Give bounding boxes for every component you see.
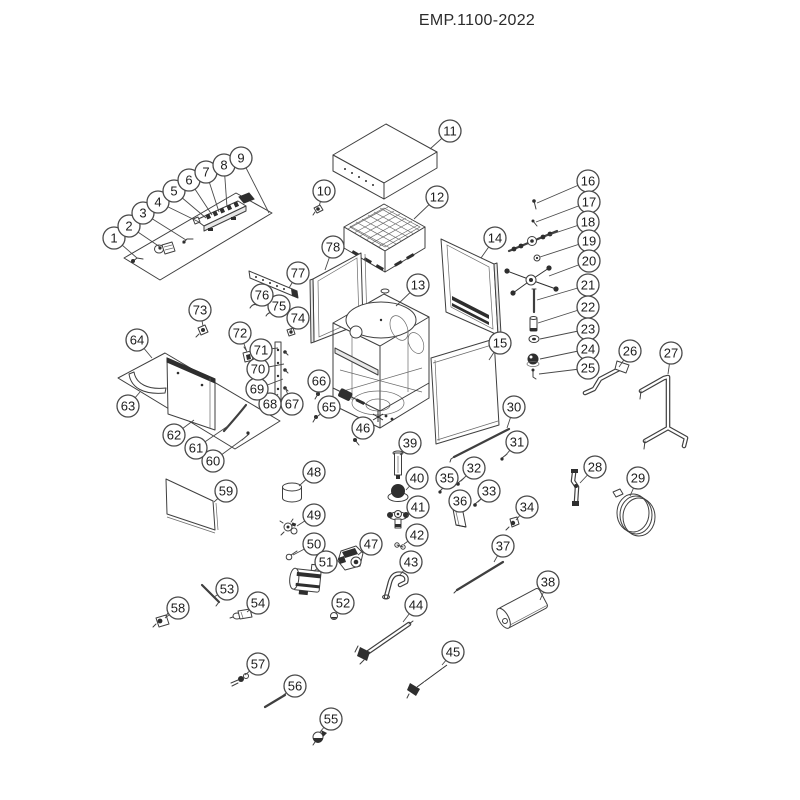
balloon-number-15: 15 bbox=[493, 336, 507, 351]
balloon-number-48: 48 bbox=[307, 465, 321, 480]
balloon-number-8: 8 bbox=[220, 158, 227, 173]
part-dome-40 bbox=[388, 484, 408, 502]
balloon-number-33: 33 bbox=[482, 484, 496, 499]
balloon-number-41: 41 bbox=[411, 500, 425, 515]
balloon-number-2: 2 bbox=[125, 219, 132, 234]
part-cup-48 bbox=[283, 483, 302, 502]
part-hose-28 bbox=[571, 469, 579, 506]
part-cylinder-38 bbox=[494, 587, 548, 630]
balloon-number-1: 1 bbox=[110, 231, 117, 246]
balloon-number-20: 20 bbox=[582, 254, 596, 269]
part-valve-41 bbox=[387, 511, 409, 529]
balloon-number-69: 69 bbox=[250, 382, 264, 397]
balloon-number-4: 4 bbox=[154, 195, 161, 210]
part-shaft-21 bbox=[532, 289, 536, 312]
exploded-diagram: 1234567891011121314151617181920212223242… bbox=[0, 0, 800, 800]
part-screw-66 bbox=[315, 392, 320, 399]
part-nut-19 bbox=[534, 255, 540, 261]
balloon-number-72: 72 bbox=[233, 326, 247, 341]
balloon-number-59: 59 bbox=[219, 484, 233, 499]
balloon-number-28: 28 bbox=[588, 460, 602, 475]
part-wash-arm-20 bbox=[504, 265, 558, 295]
balloon-number-38: 38 bbox=[541, 575, 555, 590]
part-nut-23 bbox=[529, 336, 539, 343]
balloon-number-27: 27 bbox=[664, 346, 678, 361]
balloon-number-57: 57 bbox=[251, 657, 265, 672]
balloon-number-7: 7 bbox=[202, 165, 209, 180]
part-sleeve-22 bbox=[530, 317, 537, 332]
part-screw-16 bbox=[532, 199, 536, 209]
part-rod-56 bbox=[265, 695, 285, 707]
balloon-number-23: 23 bbox=[581, 322, 595, 337]
part-heater-tube-45 bbox=[407, 665, 447, 698]
balloon-number-53: 53 bbox=[220, 582, 234, 597]
part-elbow-43 bbox=[383, 574, 407, 599]
part-screw-17 bbox=[532, 220, 538, 227]
balloon-number-44: 44 bbox=[409, 598, 423, 613]
part-screw-46 bbox=[353, 438, 359, 445]
part-top-cover bbox=[333, 124, 437, 199]
balloon-number-68: 68 bbox=[263, 397, 277, 412]
balloon-number-34: 34 bbox=[520, 500, 534, 515]
balloon-number-56: 56 bbox=[288, 679, 302, 694]
balloon-number-14: 14 bbox=[488, 231, 502, 246]
balloon-number-16: 16 bbox=[581, 174, 595, 189]
part-brace-68 bbox=[275, 342, 281, 400]
part-sensor-57 bbox=[231, 674, 249, 687]
balloon-number-75: 75 bbox=[272, 299, 286, 314]
part-pin-25 bbox=[532, 369, 537, 380]
balloon-number-10: 10 bbox=[317, 184, 331, 199]
balloon-number-17: 17 bbox=[582, 195, 596, 210]
part-panel-59 bbox=[166, 479, 218, 533]
balloon-number-9: 9 bbox=[237, 151, 244, 166]
balloon-number-37: 37 bbox=[496, 539, 510, 554]
balloon-number-32: 32 bbox=[467, 461, 481, 476]
part-door-62 bbox=[167, 358, 215, 430]
balloon-number-40: 40 bbox=[410, 471, 424, 486]
balloon-number-43: 43 bbox=[404, 555, 418, 570]
balloon-number-63: 63 bbox=[121, 399, 135, 414]
balloon-number-6: 6 bbox=[185, 173, 192, 188]
part-stand-27 bbox=[640, 377, 686, 449]
balloon-number-13: 13 bbox=[411, 278, 425, 293]
part-door-right bbox=[441, 239, 501, 335]
part-screw-65 bbox=[313, 415, 318, 422]
balloon-number-29: 29 bbox=[631, 471, 645, 486]
balloon-number-54: 54 bbox=[251, 596, 265, 611]
balloon-number-39: 39 bbox=[403, 436, 417, 451]
balloon-number-65: 65 bbox=[322, 400, 336, 415]
balloon-number-70: 70 bbox=[251, 362, 265, 377]
balloon-number-76: 76 bbox=[255, 288, 269, 303]
part-clamp-42 bbox=[395, 543, 405, 549]
balloon-number-31: 31 bbox=[510, 435, 524, 450]
part-drain-coil-29 bbox=[613, 489, 655, 536]
balloon-number-64: 64 bbox=[130, 333, 144, 348]
balloon-number-77: 77 bbox=[291, 266, 305, 281]
balloon-number-66: 66 bbox=[312, 374, 326, 389]
balloon-number-42: 42 bbox=[410, 528, 424, 543]
balloon-number-18: 18 bbox=[581, 215, 595, 230]
balloon-number-25: 25 bbox=[581, 361, 595, 376]
balloon-number-60: 60 bbox=[206, 454, 220, 469]
balloon-number-58: 58 bbox=[171, 601, 185, 616]
balloon-number-52: 52 bbox=[336, 596, 350, 611]
part-clip-73 bbox=[196, 325, 208, 337]
part-valve-55 bbox=[313, 730, 327, 745]
balloon-number-45: 45 bbox=[446, 645, 460, 660]
part-wash-arm-18 bbox=[509, 231, 557, 251]
balloon-number-50: 50 bbox=[307, 537, 321, 552]
part-screws-brace bbox=[283, 350, 288, 391]
part-impeller-49 bbox=[280, 519, 297, 535]
balloon-number-47: 47 bbox=[364, 537, 378, 552]
balloon-number-51: 51 bbox=[319, 555, 333, 570]
part-clip-10 bbox=[313, 205, 323, 215]
balloon-number-26: 26 bbox=[623, 344, 637, 359]
balloon-number-5: 5 bbox=[170, 184, 177, 199]
balloon-number-62: 62 bbox=[167, 428, 181, 443]
balloon-number-30: 30 bbox=[507, 400, 521, 415]
part-pump-47 bbox=[338, 546, 363, 570]
balloon-number-21: 21 bbox=[581, 278, 595, 293]
balloon-number-61: 61 bbox=[189, 441, 203, 456]
balloon-number-3: 3 bbox=[139, 206, 146, 221]
balloon-number-12: 12 bbox=[430, 190, 444, 205]
part-bearing-24 bbox=[527, 354, 539, 367]
balloon-number-24: 24 bbox=[581, 342, 595, 357]
part-side-panel-15 bbox=[431, 339, 499, 444]
balloon-number-19: 19 bbox=[582, 234, 596, 249]
part-rod-37 bbox=[454, 562, 503, 593]
balloon-number-46: 46 bbox=[356, 421, 370, 436]
balloon-number-22: 22 bbox=[581, 300, 595, 315]
balloon-number-74: 74 bbox=[291, 311, 305, 326]
part-ring-50 bbox=[286, 551, 297, 560]
balloon-number-35: 35 bbox=[440, 471, 454, 486]
part-bracket-58 bbox=[153, 613, 169, 627]
balloon-number-67: 67 bbox=[285, 397, 299, 412]
balloon-number-55: 55 bbox=[324, 712, 338, 727]
balloon-number-73: 73 bbox=[193, 303, 207, 318]
balloon-number-11: 11 bbox=[443, 124, 457, 139]
part-standpipe-39 bbox=[393, 451, 403, 479]
balloon-number-49: 49 bbox=[307, 508, 321, 523]
balloon-number-36: 36 bbox=[453, 494, 467, 509]
balloon-number-71: 71 bbox=[254, 343, 268, 358]
part-tube-44 bbox=[355, 621, 413, 664]
balloon-number-78: 78 bbox=[326, 240, 340, 255]
